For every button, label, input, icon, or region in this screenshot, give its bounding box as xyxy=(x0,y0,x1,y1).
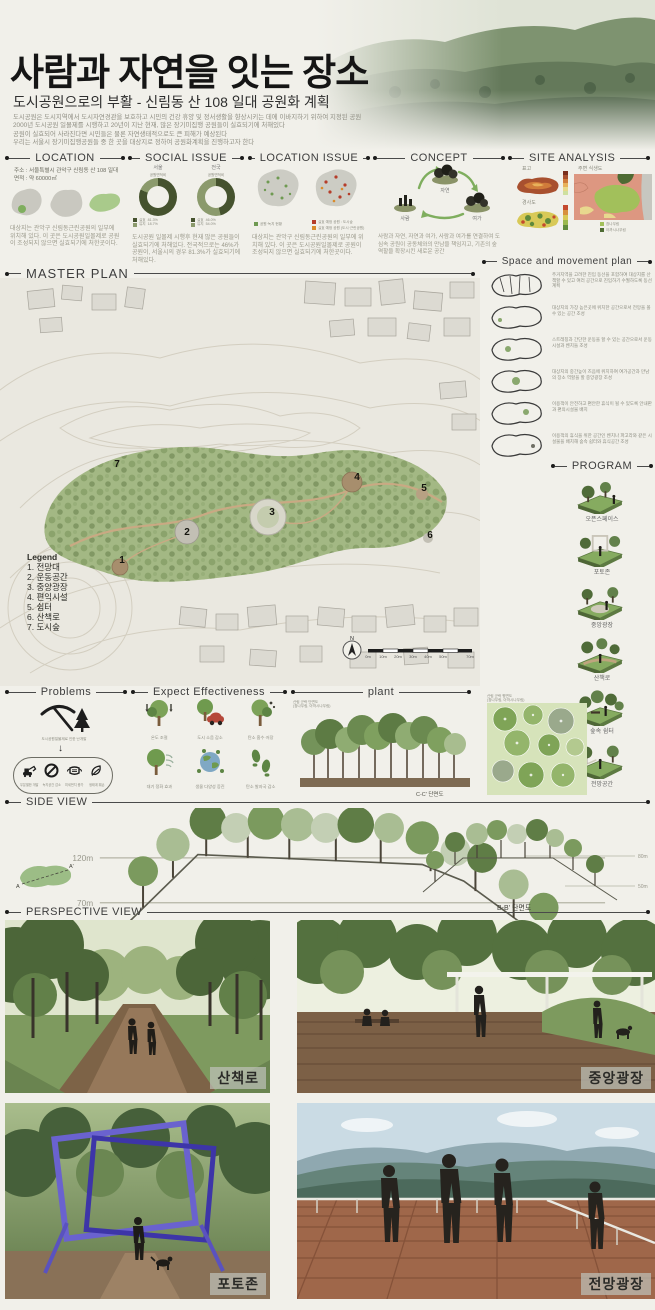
mask-icon xyxy=(66,763,83,778)
section-title: PROGRAM xyxy=(567,460,637,472)
movement-item-text: 주거지역을 고려한 진입 동선을 포함하여 대상지를 산책할 수 있고 여러 공… xyxy=(552,272,652,289)
perspective-image-photozone: 포토존 xyxy=(5,1103,270,1299)
concept-node-people xyxy=(394,195,416,212)
down-arrow-icon: ↓ xyxy=(58,743,63,754)
concept-caption: 사람과 자연, 자연과 여가, 사람과 여가를 연결하여 도심속 공원이 공동체… xyxy=(378,234,502,257)
program-item-label: 포토존 xyxy=(551,567,653,576)
section-title: Expect Effectiveness xyxy=(148,686,270,698)
location-caption: 대상지는 관악구 신림동근린공원의 일부에 위치해 있다. 이 곳은 도시공원일… xyxy=(10,226,120,249)
side-view-key-plan: A A' xyxy=(14,858,76,896)
movement-diagram-4 xyxy=(486,366,546,396)
scale-label: 10m xyxy=(379,654,387,659)
concept-node-label: 사람 xyxy=(400,215,410,222)
legend-title: Legend xyxy=(27,552,68,562)
section-title: SITE ANALYSIS xyxy=(524,152,620,164)
image-label-viewpoint: 전망광장 xyxy=(581,1273,651,1295)
program-thumb-photozone xyxy=(572,525,628,567)
effect-carbon: 탄소 흡수·저장 xyxy=(235,698,286,741)
plan-marker-5: 5 xyxy=(421,483,427,494)
effect-development: 무분별한 개발 xyxy=(18,763,40,787)
deforestation-icon xyxy=(38,700,92,734)
elevation-label-b-top: 80m xyxy=(638,854,648,860)
tree-cooling-icon xyxy=(144,698,174,730)
inset-label-a2: A' xyxy=(69,864,74,870)
section-header-location: LOCATION xyxy=(5,152,125,164)
effect-label: 무분별한 개발 xyxy=(18,783,40,787)
movement-diagram-6 xyxy=(486,430,546,460)
section-title: SIDE VIEW xyxy=(21,796,92,808)
effect-item-label: 온도 조절 xyxy=(134,735,185,741)
legend-item: 3. 중앙광장 xyxy=(27,582,68,592)
section-header-perspective: PERSPECTIVE VIEW xyxy=(5,906,650,918)
site-analysis-slope-label: 경사도 xyxy=(522,201,536,207)
image-label-plaza: 중앙광장 xyxy=(581,1067,651,1089)
legend-pct: 54.0% xyxy=(206,222,216,226)
problems-effects-pill: 무분별한 개발 녹지공간 감소 미세먼지 증가 생태계 훼손 xyxy=(13,757,113,794)
poster-board: 사람과 자연을 잇는 장소 도시공원으로의 부활 - 신림동 산 108 일대 … xyxy=(0,0,655,1310)
movement-item-text: 이용객이 안전하고 편안한 휴식이 될 수 있도록 안내판과 편의시설물 배치 xyxy=(552,401,652,412)
section-title: LOCATION xyxy=(30,152,99,164)
page-title: 사람과 자연을 잇는 장소 xyxy=(10,42,368,96)
effect-temp: 온도 조절 xyxy=(134,698,185,741)
section-title: Problems xyxy=(36,686,96,698)
elevation-map xyxy=(514,173,562,197)
effect-item-label: 생물 다양성 증진 xyxy=(185,784,236,790)
movement-item-text: 대상지의 중간높이 즈음에 위치하여 여가공간과 만남의 장소 역할을 할 중앙… xyxy=(552,369,652,380)
intro-line: 공원이 실효되어 사라진다면 시민들은 물론 자연생태적으로도 큰 피해가 예상… xyxy=(13,131,453,139)
concept-cycle-diagram: 자연 사람 여가 xyxy=(383,162,497,228)
photozone-scene xyxy=(5,1103,270,1299)
master-plan-legend: Legend 1. 전망대 2. 운동공간 3. 중앙광장 4. 편익시설 5.… xyxy=(27,552,68,632)
legend-item: 6. 산책로 xyxy=(27,612,68,622)
effect-green-loss: 녹지공간 감소 xyxy=(41,763,63,787)
movement-item-text: 이용객의 휴식을 위한 공간인 벤치나 파고라와 같은 시설물을 배치해 숲속 … xyxy=(552,433,652,444)
problems-cause-caption: 도시공원일몰제로 인한 난개발 xyxy=(14,737,114,741)
program-item-label: 산책로 xyxy=(551,673,653,682)
legend-item: 7. 도시숲 xyxy=(27,622,68,632)
perspective-image-viewpoint: 전망광장 xyxy=(297,1103,655,1299)
page-subtitle: 도시공원으로의 부활 - 신림동 산 108 일대 공원화 계획 xyxy=(13,92,330,112)
elevation-label-b-bottom: 50m xyxy=(638,884,648,890)
section-header-side-view: SIDE VIEW xyxy=(5,796,650,808)
tree-car-icon xyxy=(193,698,227,730)
intro-paragraph: 도시공원은 도시지역에서 도시자연경관을 보호하고 시민의 건강 휴양 및 정서… xyxy=(13,114,453,148)
pergola-beam xyxy=(447,972,652,977)
concept-node-leisure xyxy=(464,193,490,213)
vegetation-map-label: 주변 식생도 xyxy=(578,167,602,173)
effect-label: 생태계 훼손 xyxy=(86,783,108,787)
donut-ring xyxy=(139,178,177,216)
concept-node-label: 자연 xyxy=(440,187,450,194)
movement-item-text: 대상지의 가장 높은곳에 위치한 공간으로서 전망을 볼 수 있는 공간 조성 xyxy=(552,305,652,316)
scale-label: 0m xyxy=(365,654,371,659)
legend-item: 1. 전망대 xyxy=(27,562,68,572)
section-header-program: PROGRAM xyxy=(551,460,653,472)
effect-item-label: 탄소 흡수·저장 xyxy=(235,735,286,741)
chart-region: 전국 xyxy=(191,166,241,172)
perspective-image-trail: 산책로 xyxy=(5,920,270,1093)
image-label-trail: 산책로 xyxy=(210,1067,266,1089)
plan-marker-7: 7 xyxy=(114,459,120,470)
map1-legend: 공원·녹지 현황 xyxy=(260,222,282,226)
legend-name: 유지 xyxy=(197,222,204,226)
plan-marker-4: 4 xyxy=(354,472,360,483)
map2-legend-2: 실효 예정 공원 (도시·근린공원) xyxy=(318,226,364,230)
chart-metric: 공원면적비 xyxy=(133,173,183,177)
vegetation-legend-2: 아까시나무림 xyxy=(606,228,626,232)
effect-item-label: 탄소 발자국 감소 xyxy=(235,784,286,790)
section-header-problems: Problems xyxy=(5,686,127,698)
plant-section-drawing: C-C' 단면도 xyxy=(296,704,478,798)
plant-plan-drawing xyxy=(487,703,587,795)
earth-icon xyxy=(194,747,226,779)
scale-label: 70m xyxy=(466,654,474,659)
section-header-social-issue: SOCIAL ISSUE xyxy=(128,152,244,164)
master-plan-map: 1 2 3 4 5 6 7 N 0m 10m 20m 30m 40m xyxy=(0,278,480,686)
effect-air: 대기 정화 효과 xyxy=(134,747,185,790)
concept-node-label: 여가 xyxy=(472,215,482,222)
site-analysis-elevation-label: 표고 xyxy=(522,167,531,173)
image-label-photozone: 포토존 xyxy=(210,1273,266,1295)
effect-noise: 도시 소음 감소 xyxy=(185,698,236,741)
effect-item-label: 도시 소음 감소 xyxy=(185,735,236,741)
vegetation-map xyxy=(574,174,652,220)
program-item-label: 중앙광장 xyxy=(551,620,653,629)
social-issue-caption: 도시공원 일몰제 시행후 현재 많은 공원들이 실효되기에 처해있다. 전국적으… xyxy=(132,235,242,265)
north-label: N xyxy=(350,636,354,642)
program-thumb-openspace xyxy=(572,472,628,514)
green-footprints-icon xyxy=(247,747,275,779)
donut-chart-seoul: 서울 공원면적비 실효 81.3% 유지 18.7% xyxy=(133,166,183,227)
program-thumb-trail xyxy=(572,631,628,673)
leaf-icon xyxy=(89,763,104,778)
section-title: Space and movement plan xyxy=(497,256,637,267)
vegetation-legend-1: 참나무림 xyxy=(606,222,619,226)
viewpoint-scene xyxy=(297,1103,655,1299)
social-issue-charts: 서울 공원면적비 실효 81.3% 유지 18.7% 전국 공원면적비 실효 4… xyxy=(133,166,241,227)
legend-pct: 18.7% xyxy=(148,222,158,226)
section-header-site-analysis: SITE ANALYSIS xyxy=(508,152,650,164)
legend-item: 5. 쉼터 xyxy=(27,602,68,612)
location-maps xyxy=(6,184,122,222)
effect-dust: 미세먼지 증가 xyxy=(63,763,85,787)
plan-marker-1: 1 xyxy=(119,555,125,566)
donut-ring xyxy=(197,178,235,216)
plan-marker-3: 3 xyxy=(269,507,275,518)
location-address: 주소 : 서울특별시 관악구 신림동 산 108 일대 xyxy=(14,169,118,175)
elevation-colorbar xyxy=(563,171,568,197)
effect-biodiversity: 생물 다양성 증진 xyxy=(185,747,236,790)
program-item-label: 오픈스페이스 xyxy=(551,514,653,523)
slope-map xyxy=(514,207,562,231)
effect-ecosystem: 생태계 훼손 xyxy=(86,763,108,787)
donut-chart-nation: 전국 공원면적비 실효 46.0% 유지 54.0% xyxy=(191,166,241,227)
location-area: 면적 : 약 60000㎡ xyxy=(14,177,57,183)
scale-label: 20m xyxy=(394,654,402,659)
intro-line: 2000년 도시공원 일몰제를 시행하고 20년이 지난 현재, 많은 장기미집… xyxy=(13,122,453,130)
side-view-section-b: 80m 50m B-B' 단면도 xyxy=(405,812,653,912)
effect-footprint: 탄소 발자국 감소 xyxy=(235,747,286,790)
perspective-image-plaza: 중앙광장 xyxy=(297,920,655,1093)
tree-carbon-icon xyxy=(246,698,276,730)
program-thumb-plaza xyxy=(572,578,628,620)
excavator-icon xyxy=(21,763,37,778)
movement-item-text: 스트레칭과 간단한 운동을 할 수 있는 공간으로서 운동시설과 벤치들 조성 xyxy=(552,337,652,348)
chart-metric: 공원면적비 xyxy=(191,173,241,177)
section-header-location-issue: LOCATION ISSUE xyxy=(248,152,370,164)
legend-item: 4. 편익시설 xyxy=(27,592,68,602)
intro-line: 우리는 서울시 장기미집행공원들 중 한 곳을 대상지로 정하여 공원화계획을 … xyxy=(13,139,453,147)
effectiveness-grid: 온도 조절 도시 소음 감소 탄소 흡수·저장 대기 정화 xyxy=(134,698,286,789)
location-issue-caption: 대상지는 관악구 신림동근린공원의 일부에 위치해 있다. 이 곳은 도시공원일… xyxy=(252,235,366,258)
scale-label: 30m xyxy=(409,654,417,659)
plan-marker-2: 2 xyxy=(184,527,190,538)
inset-label-a: A xyxy=(16,884,20,890)
section-title: PERSPECTIVE VIEW xyxy=(21,906,147,918)
section-title: SOCIAL ISSUE xyxy=(140,152,232,164)
scale-label: 40m xyxy=(424,654,432,659)
effect-label: 녹지공간 감소 xyxy=(41,783,63,787)
map2-legend-1: 실효 예정 공원 : 도시숲 xyxy=(318,220,353,224)
section-header-plant: plant xyxy=(291,686,471,698)
movement-diagram-5 xyxy=(486,398,546,428)
effect-label: 미세먼지 증가 xyxy=(63,783,85,787)
location-issue-maps xyxy=(250,164,368,222)
section-title: plant xyxy=(363,686,399,698)
tree-wind-icon xyxy=(143,747,175,779)
section-header-effectiveness: Expect Effectiveness xyxy=(131,686,287,698)
section-title: LOCATION ISSUE xyxy=(255,152,363,164)
legend-item: 2. 운동공간 xyxy=(27,572,68,582)
movement-diagram-3 xyxy=(486,334,546,364)
legend-name: 유지 xyxy=(139,222,146,226)
prohibition-icon xyxy=(44,763,59,778)
effect-item-label: 대기 정화 효과 xyxy=(134,784,185,790)
movement-diagram-1 xyxy=(486,270,546,300)
section-header-movement-plan: Space and movement plan xyxy=(482,256,652,267)
chart-region: 서울 xyxy=(133,166,183,172)
slope-colorbar xyxy=(563,205,568,231)
plan-marker-6: 6 xyxy=(427,530,433,541)
movement-diagram-2 xyxy=(486,302,546,332)
scale-label: 50m xyxy=(439,654,447,659)
